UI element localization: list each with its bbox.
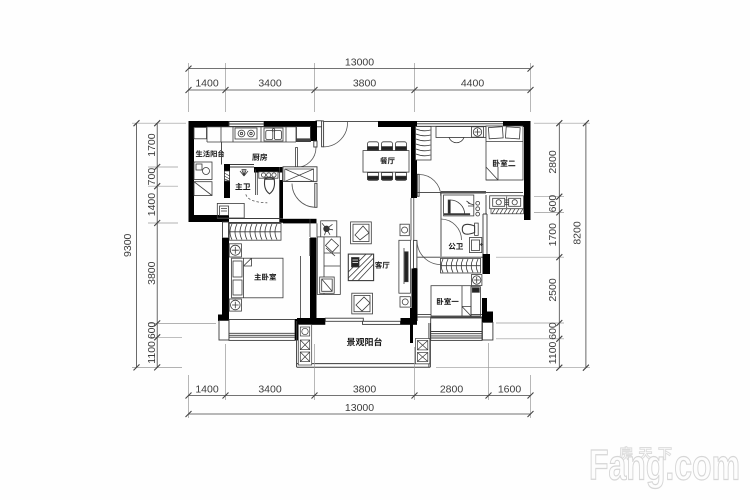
svg-text:3800: 3800 [146, 261, 158, 285]
svg-text:4400: 4400 [461, 78, 485, 90]
svg-text:13000: 13000 [345, 402, 374, 414]
svg-text:1700: 1700 [547, 223, 559, 247]
svg-text:8200: 8200 [571, 221, 583, 245]
svg-text:Fang.com: Fang.com [589, 442, 740, 490]
svg-text:3800: 3800 [353, 78, 377, 90]
svg-text:13000: 13000 [345, 57, 374, 69]
svg-text:600: 600 [547, 322, 559, 340]
svg-text:700: 700 [146, 168, 158, 186]
svg-text:3400: 3400 [258, 78, 282, 90]
svg-text:600: 600 [547, 195, 559, 213]
svg-text:9300: 9300 [122, 233, 134, 257]
svg-text:600: 600 [146, 321, 158, 339]
svg-text:1400: 1400 [195, 78, 219, 90]
svg-text:1100: 1100 [146, 341, 158, 364]
svg-text:3400: 3400 [258, 384, 282, 396]
svg-text:2800: 2800 [440, 384, 464, 396]
svg-text:1600: 1600 [498, 384, 522, 396]
svg-text:1700: 1700 [146, 133, 158, 157]
svg-text:1400: 1400 [195, 384, 219, 396]
svg-text:2800: 2800 [547, 150, 559, 174]
svg-text:3800: 3800 [353, 384, 377, 396]
svg-text:1400: 1400 [146, 193, 158, 217]
svg-text:2500: 2500 [547, 278, 559, 302]
svg-text:1100: 1100 [547, 341, 559, 364]
